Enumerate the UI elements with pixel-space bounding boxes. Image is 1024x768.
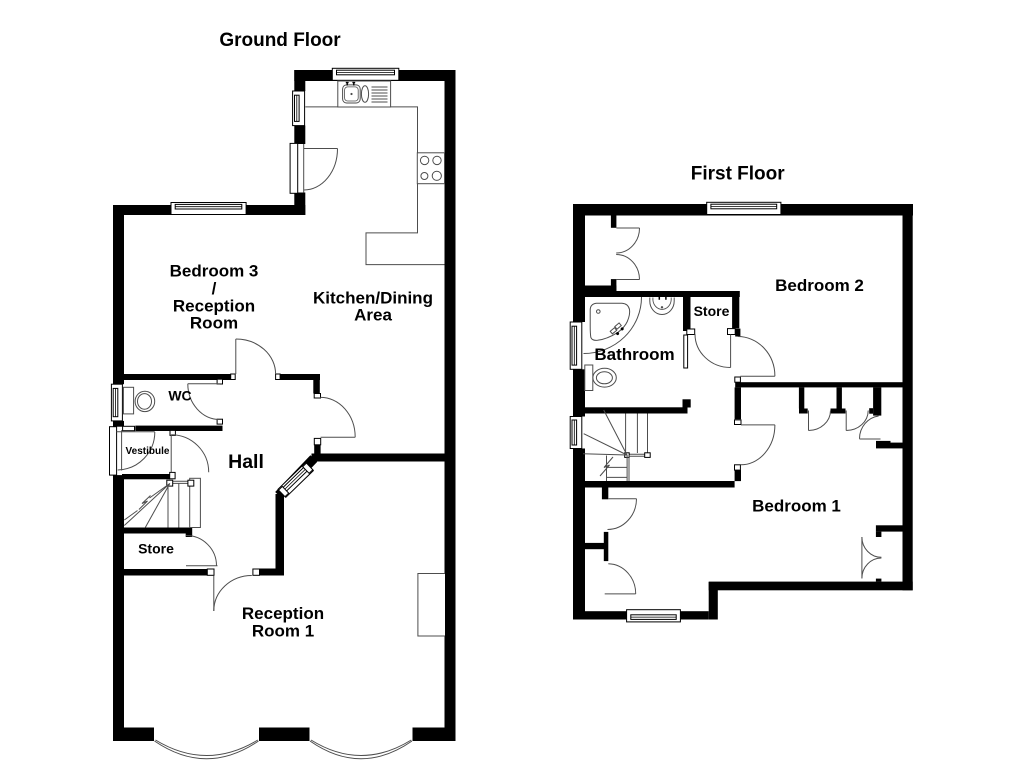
svg-text:First Floor: First Floor [691, 163, 786, 184]
svg-text:Hall: Hall [228, 451, 264, 473]
svg-text:Vestibule: Vestibule [126, 446, 170, 457]
svg-text:Store: Store [694, 303, 730, 319]
svg-text:WC: WC [168, 388, 191, 404]
svg-text:Room: Room [190, 314, 238, 333]
svg-text:Bedroom 2: Bedroom 2 [775, 276, 864, 295]
svg-text:Ground Floor: Ground Floor [219, 30, 341, 51]
svg-text:Bedroom 3: Bedroom 3 [170, 262, 259, 281]
svg-text:Area: Area [354, 306, 392, 325]
svg-text:Reception: Reception [242, 604, 324, 623]
svg-text:Bedroom 1: Bedroom 1 [752, 497, 841, 516]
svg-text:/: / [212, 279, 217, 298]
svg-text:Store: Store [138, 541, 174, 557]
svg-text:Room 1: Room 1 [252, 622, 314, 641]
svg-text:Bathroom: Bathroom [594, 345, 674, 364]
